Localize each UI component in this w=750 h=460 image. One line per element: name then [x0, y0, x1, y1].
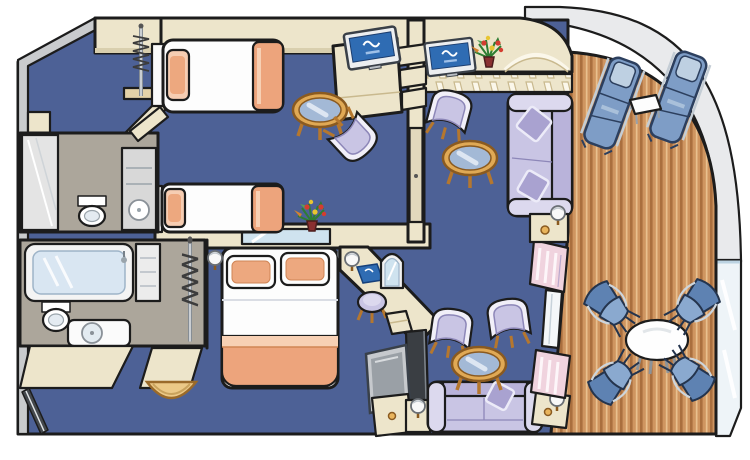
suite-floorplan [0, 0, 750, 460]
toilet-2 [42, 302, 70, 331]
queen-pillow-right [281, 253, 329, 285]
pink-curtain-upper [530, 240, 568, 292]
pink-curtain-lower [531, 350, 570, 398]
sofa-living [508, 94, 572, 216]
shelf-column [136, 244, 160, 301]
sink-vanity-2 [68, 320, 130, 346]
twin-bed-upper [152, 40, 283, 112]
sofa-bed [428, 381, 542, 432]
queen-pillow-left [227, 256, 275, 288]
door-handle [414, 174, 418, 178]
glass-railing-panel [716, 260, 741, 436]
balcony-door-panel [542, 290, 562, 348]
bathtub [25, 244, 133, 301]
twin-bed-lower [150, 184, 283, 232]
queen-bed [222, 248, 338, 388]
sink-vanity-1 [122, 148, 156, 230]
arched-mirror [381, 254, 403, 288]
glass-railing [716, 260, 741, 436]
drawer-unit [386, 311, 412, 334]
toilet-1 [78, 196, 106, 226]
nightstand-left [406, 399, 430, 432]
vanity-apron [20, 346, 133, 388]
floorplan-stage [0, 0, 750, 460]
